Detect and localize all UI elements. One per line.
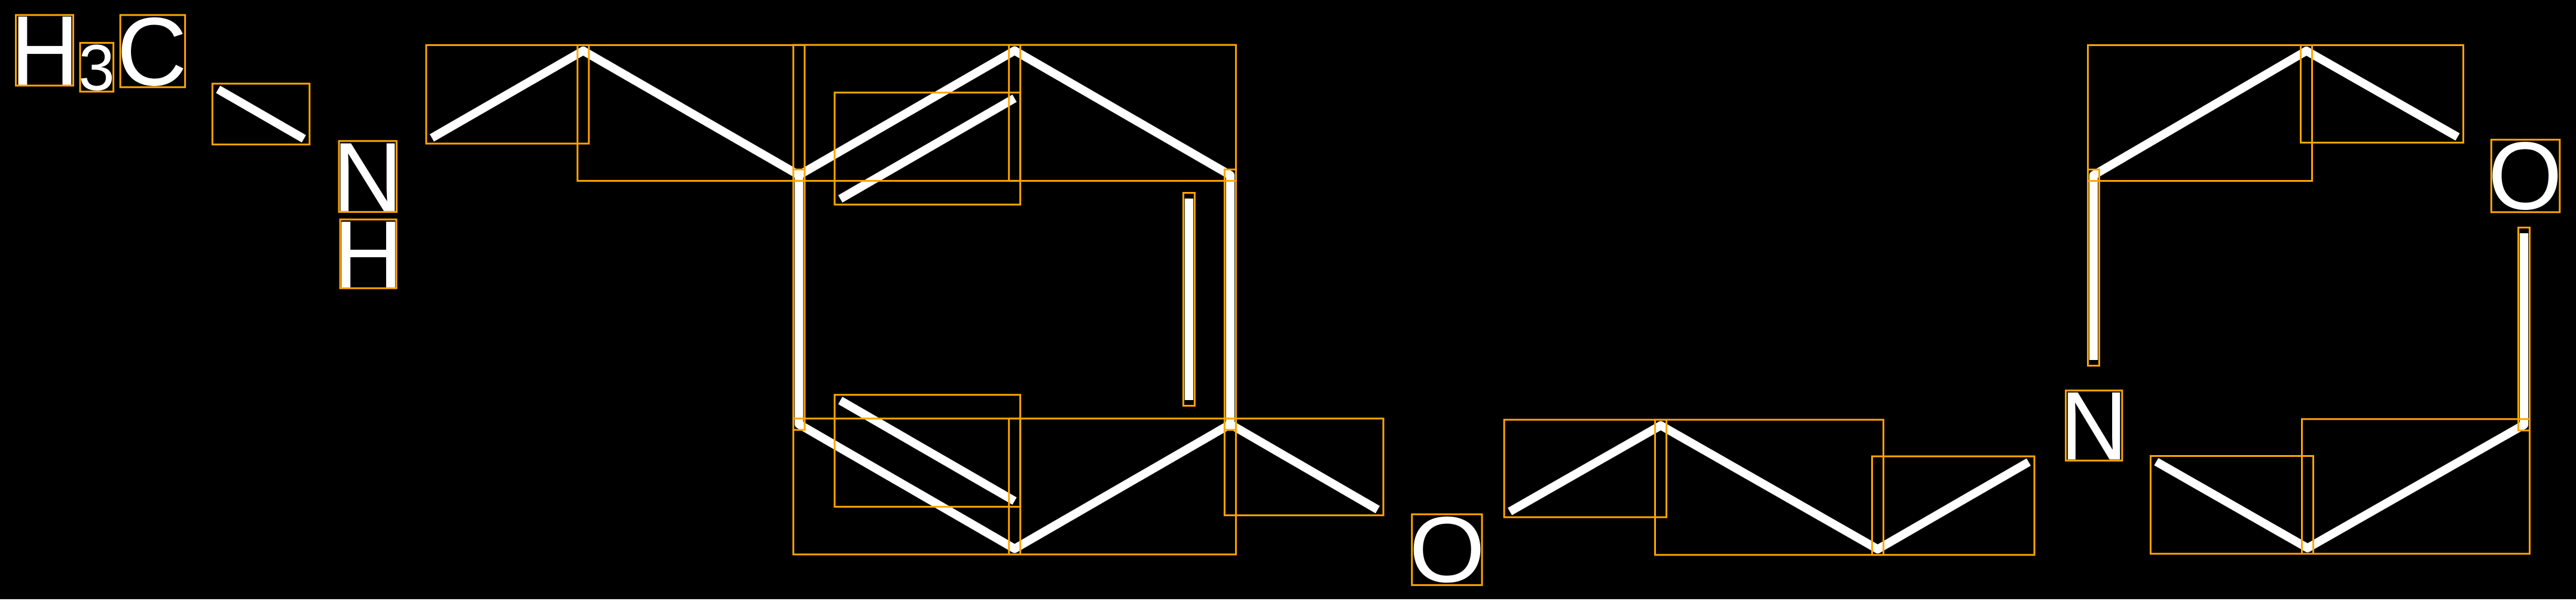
- svg-text:H: H: [334, 202, 403, 309]
- svg-text:O: O: [2488, 123, 2562, 230]
- svg-text:H: H: [11, 0, 80, 108]
- svg-text:N: N: [2060, 372, 2128, 480]
